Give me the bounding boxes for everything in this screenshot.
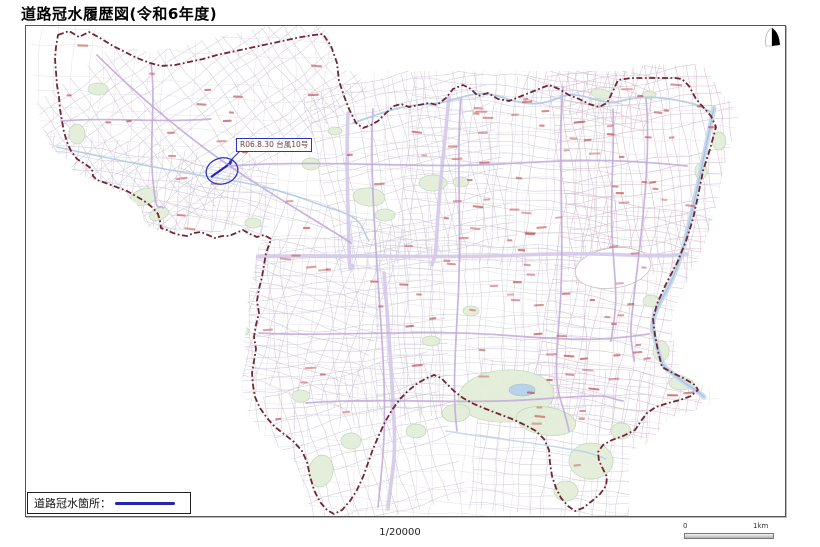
legend-label: 道路冠水箇所： xyxy=(34,495,111,511)
page-title: 道路冠水履歴図(令和6年度) xyxy=(21,3,217,24)
legend-box: 道路冠水箇所： xyxy=(27,492,191,514)
map-scale-ratio: 1/20000 xyxy=(360,527,440,538)
map-image xyxy=(26,26,785,516)
legend-flood-line-swatch xyxy=(115,502,175,505)
scalebar-start-label: 0 xyxy=(683,522,687,530)
map-canvas xyxy=(25,25,786,517)
north-arrow-icon xyxy=(766,28,780,46)
flood-annotation-circle xyxy=(203,154,241,187)
scalebar xyxy=(684,533,774,539)
scalebar-end-label: 1km xyxy=(753,522,768,530)
flood-annotation-label: R06.8.30 台風10号 xyxy=(236,138,312,152)
pond xyxy=(509,384,535,396)
